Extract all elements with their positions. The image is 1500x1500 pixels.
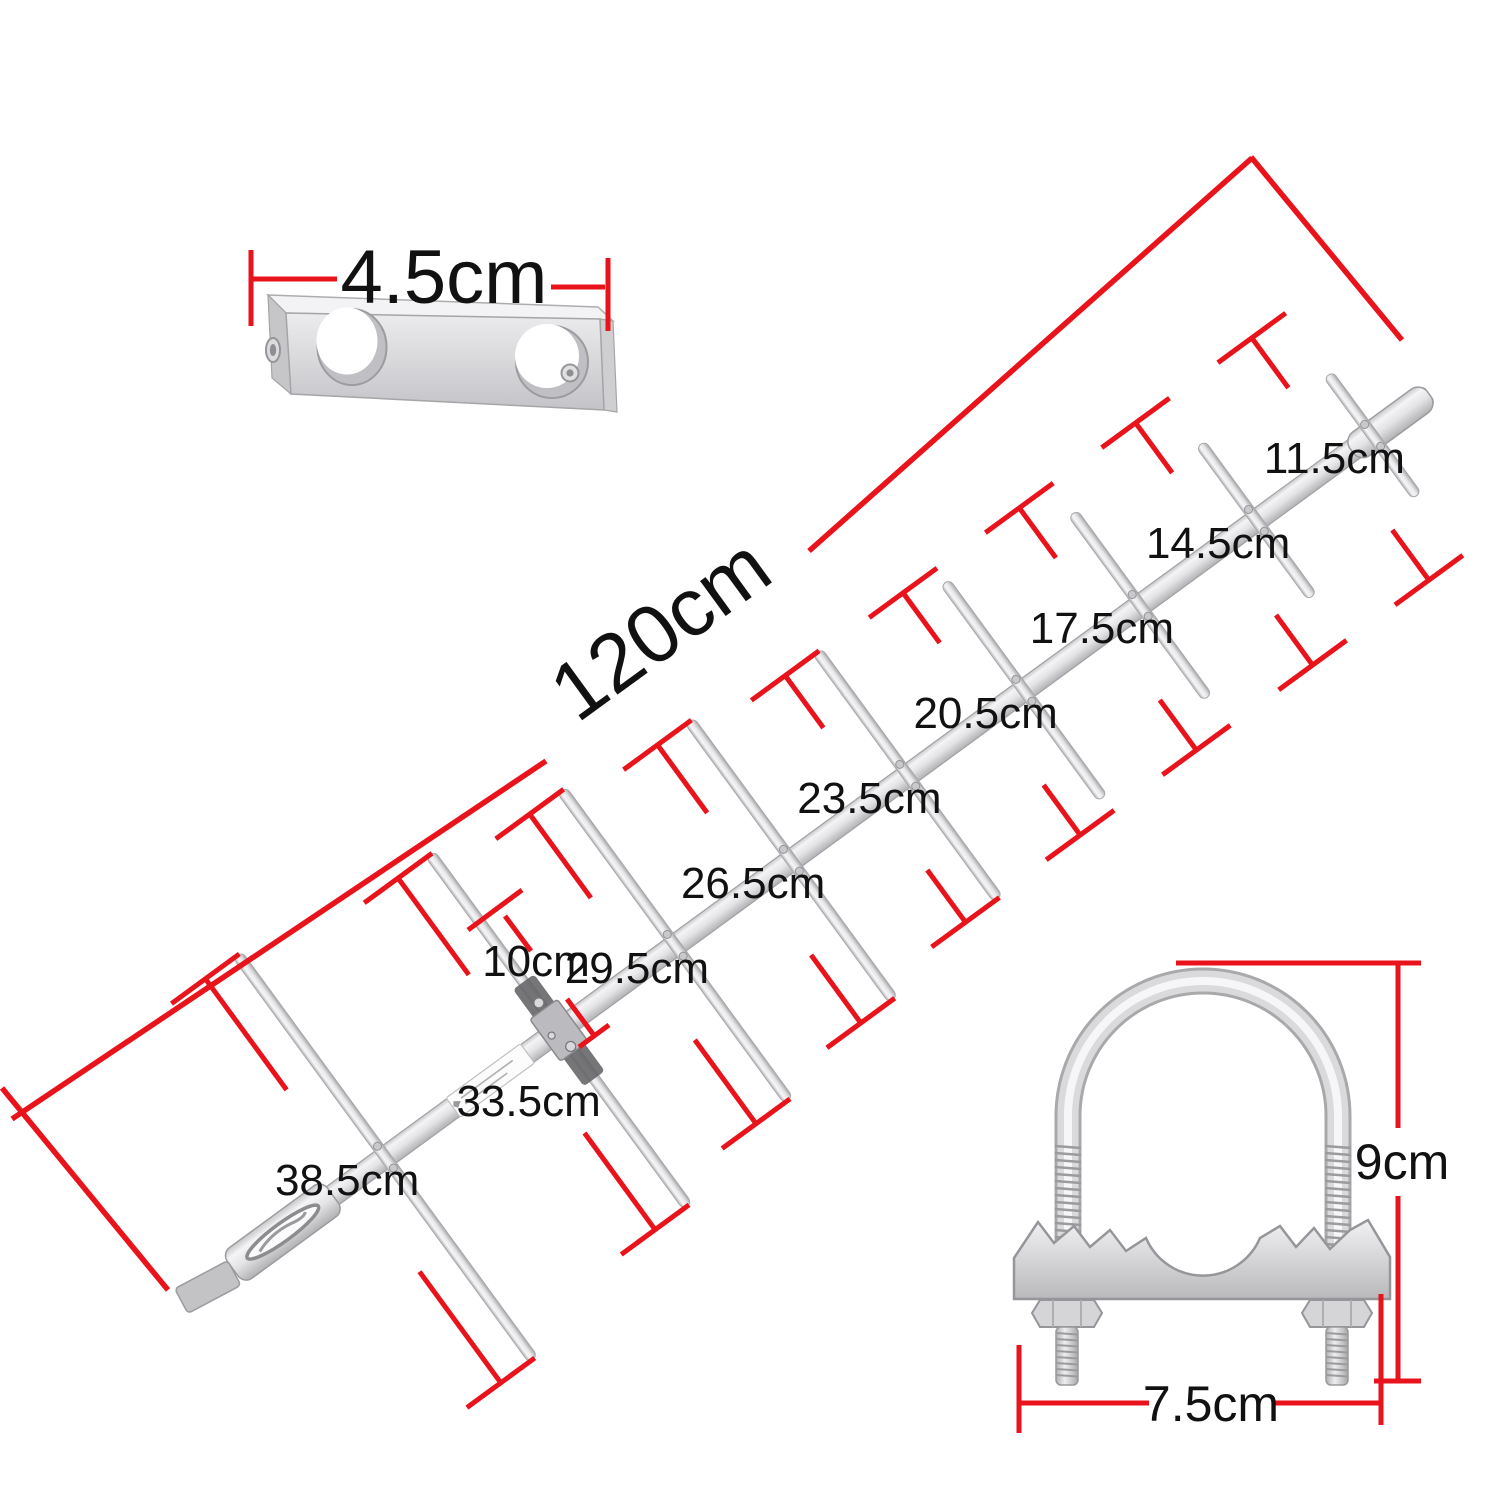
u-bolt-clamp <box>1014 981 1390 1385</box>
u-bolt-threads <box>1055 1146 1351 1246</box>
element-dimension-label: 14.5cm <box>1146 519 1290 568</box>
element-dimension-label: 20.5cm <box>913 689 1057 738</box>
element-dimension-label: 17.5cm <box>1030 604 1174 653</box>
u-bolt <box>1068 981 1338 1252</box>
diagram-canvas: 4.5cm 120cm 38.5cm33.5cm29.5cm26.5cm23.5… <box>0 0 1500 1500</box>
clamp-nut-right <box>1302 1300 1372 1327</box>
clamp-width-label: 7.5cm <box>1143 1376 1279 1432</box>
clamp-nut-left <box>1032 1300 1102 1327</box>
spacer-side-hole <box>266 338 280 362</box>
boom-dimension <box>2 157 1402 1290</box>
stud-threads <box>1056 1333 1348 1377</box>
element-dimension-label: 26.5cm <box>681 859 825 908</box>
element-dimension-label: 11.5cm <box>1264 434 1405 483</box>
element-dimension-label: 38.5cm <box>275 1156 419 1205</box>
clamp-height-label: 9cm <box>1355 1134 1449 1190</box>
boom-end-cap <box>175 1261 241 1314</box>
block-width-label: 4.5cm <box>341 235 548 320</box>
element-dimension-label: 33.5cm <box>456 1077 600 1126</box>
element-dimension-label: 23.5cm <box>797 774 941 823</box>
spacer-hole-right <box>515 324 588 398</box>
spacing-dimension-label: 10cm <box>482 937 590 986</box>
scene-svg: 4.5cm 120cm 38.5cm33.5cm29.5cm26.5cm23.5… <box>0 0 1500 1500</box>
boom-dimension-label: 120cm <box>534 520 787 738</box>
